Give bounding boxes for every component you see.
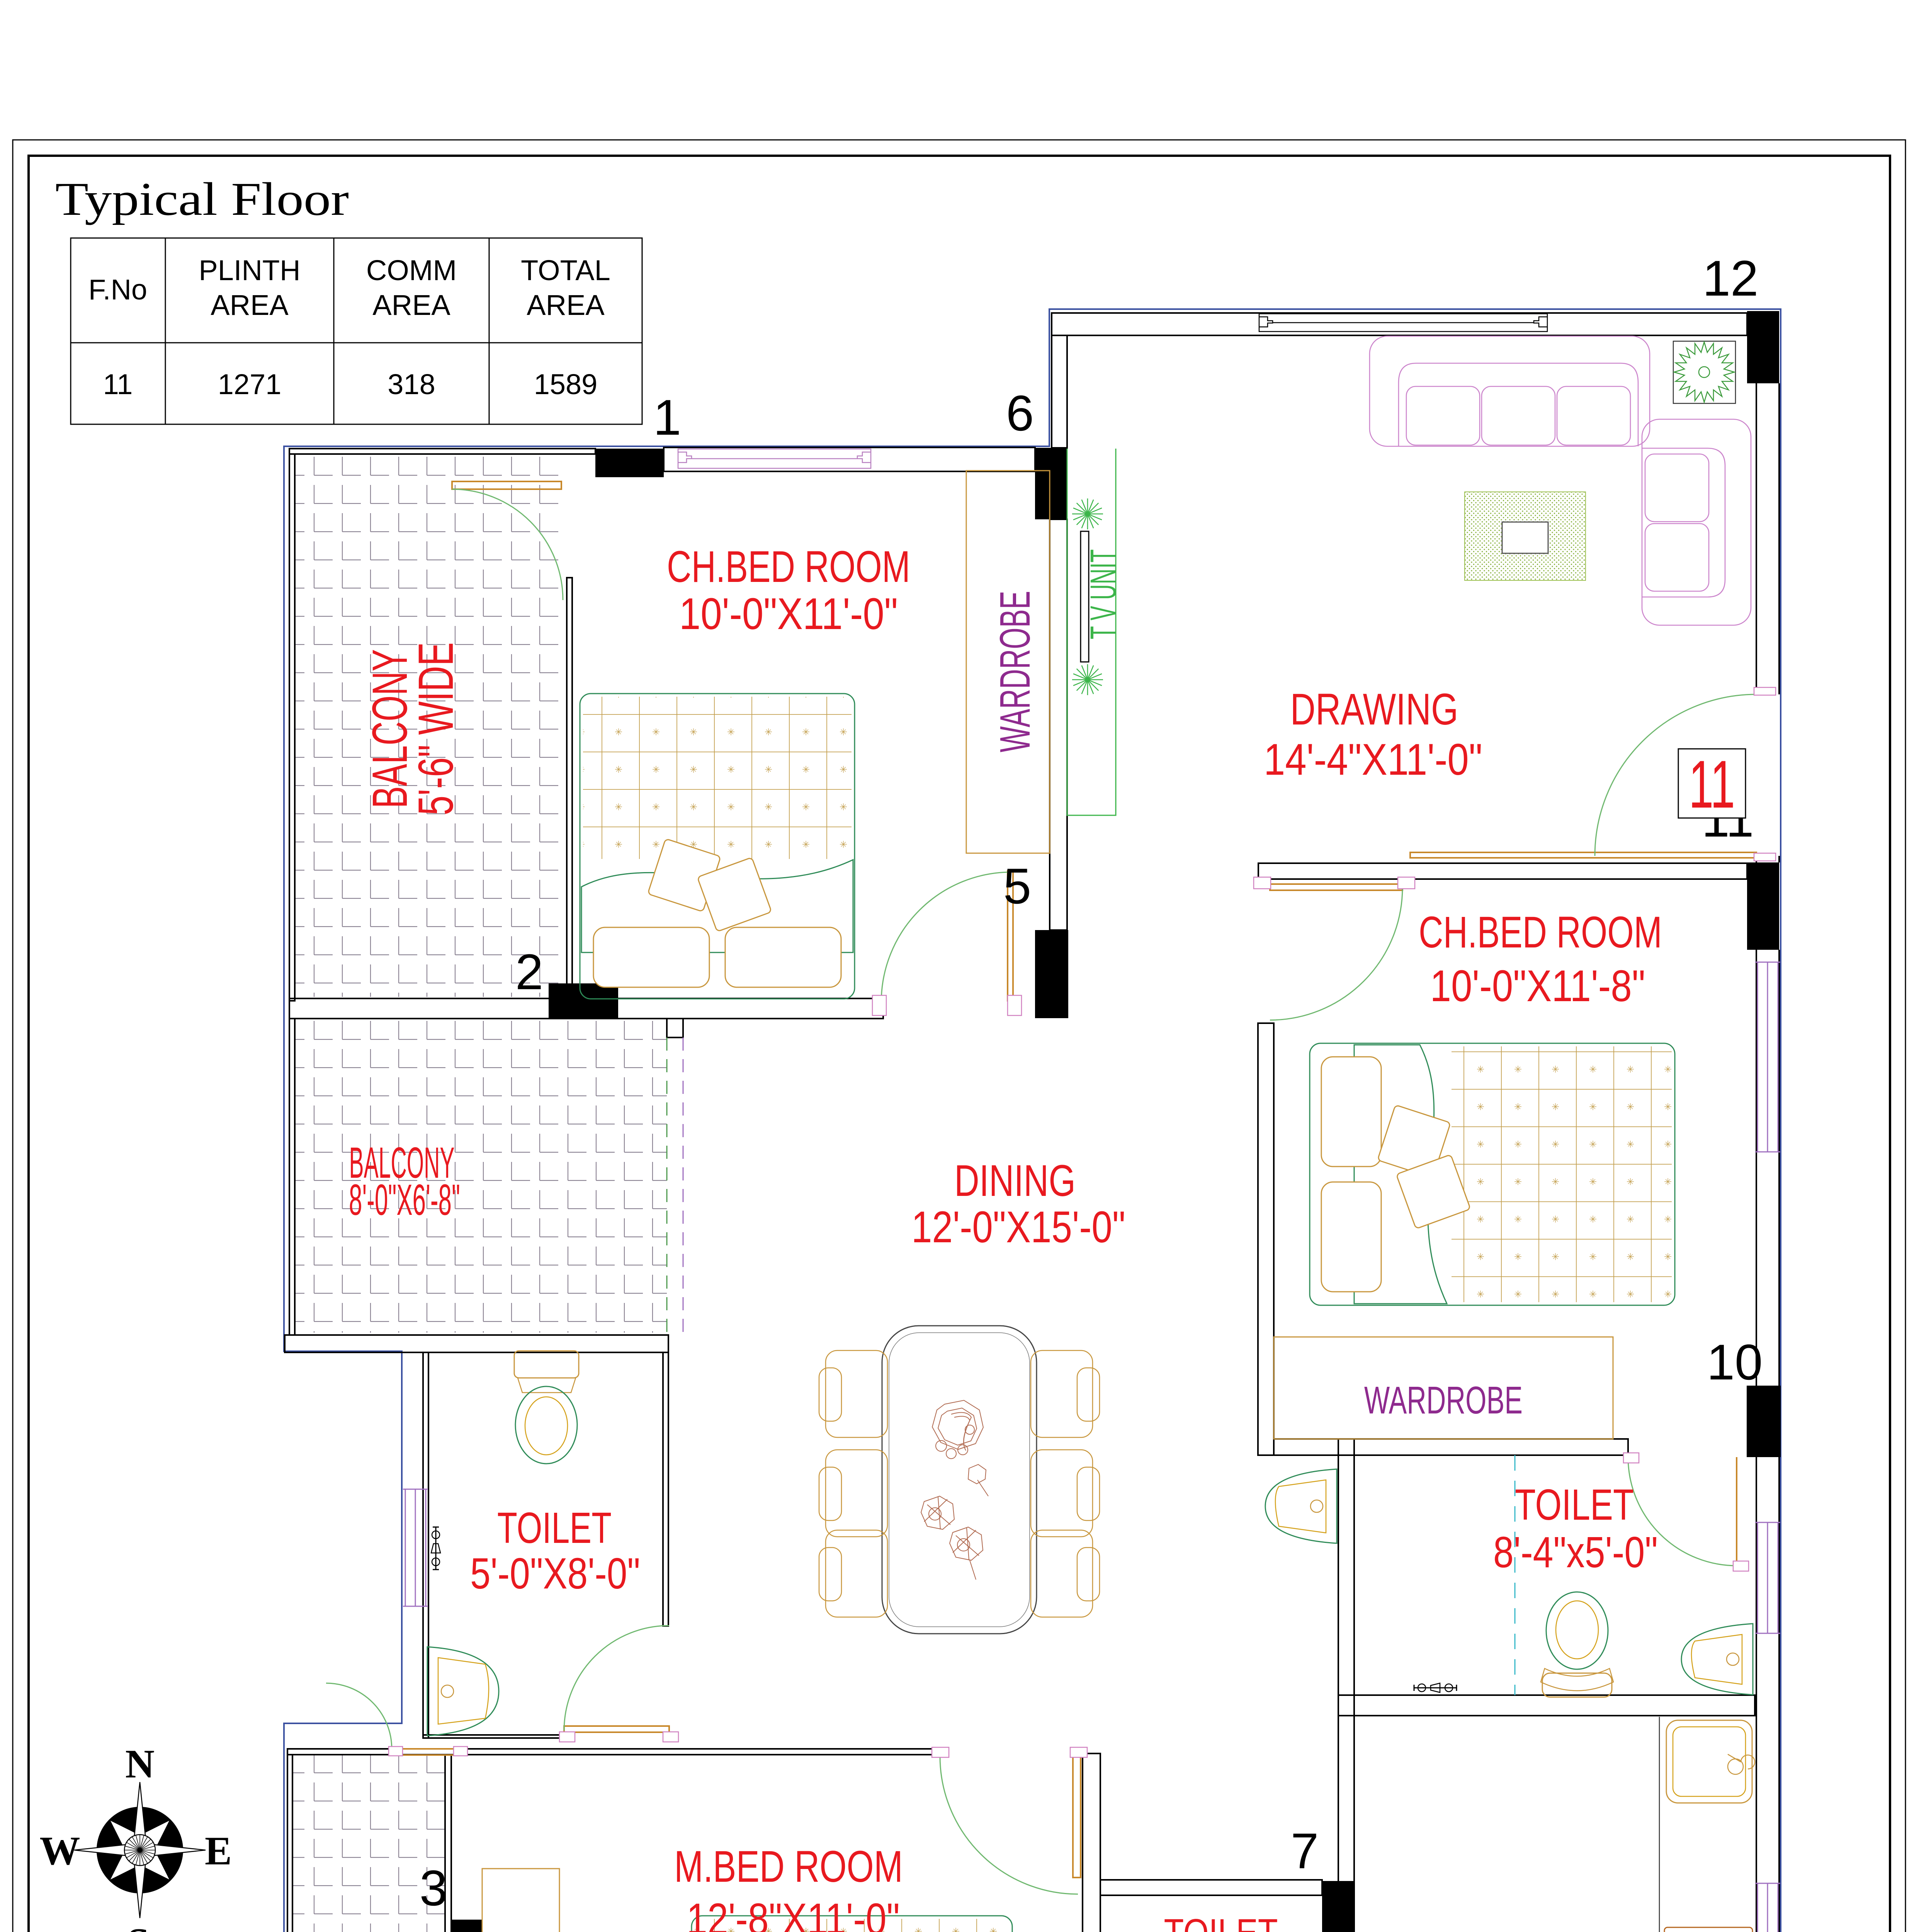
svg-text:CH.BED ROOM: CH.BED ROOM xyxy=(1419,908,1662,957)
svg-text:S: S xyxy=(127,1920,150,1932)
svg-text:WARDROBE: WARDROBE xyxy=(991,591,1039,752)
svg-text:12'-8"X11'-0": 12'-8"X11'-0" xyxy=(687,1895,900,1932)
svg-text:7: 7 xyxy=(1291,1823,1319,1879)
svg-text:5'-0"X8'-0": 5'-0"X8'-0" xyxy=(470,1549,640,1598)
svg-text:2: 2 xyxy=(515,944,543,1000)
svg-text:5'-6" WIDE: 5'-6" WIDE xyxy=(408,642,464,815)
svg-text:AREA: AREA xyxy=(372,289,450,321)
svg-text:DINING: DINING xyxy=(954,1156,1076,1206)
svg-text:10: 10 xyxy=(1707,1334,1763,1390)
svg-text:3: 3 xyxy=(420,1860,447,1916)
svg-text:14'-4"X11'-0": 14'-4"X11'-0" xyxy=(1264,735,1482,784)
svg-text:TOILET: TOILET xyxy=(497,1503,612,1552)
svg-text:E: E xyxy=(205,1828,232,1873)
svg-text:8'-4"x5'-0": 8'-4"x5'-0" xyxy=(1493,1528,1658,1577)
svg-text:318: 318 xyxy=(388,368,435,400)
svg-text:Typical Floor: Typical Floor xyxy=(55,173,349,225)
svg-text:PLINTH: PLINTH xyxy=(199,254,300,286)
svg-text:11: 11 xyxy=(103,368,133,400)
svg-text:DRAWING: DRAWING xyxy=(1290,685,1458,734)
svg-text:5: 5 xyxy=(1003,858,1031,914)
svg-text:TOILET: TOILET xyxy=(1164,1911,1278,1932)
svg-text:TOILET: TOILET xyxy=(1515,1480,1634,1529)
svg-text:12'-0"X15'-0": 12'-0"X15'-0" xyxy=(911,1202,1125,1252)
svg-text:11: 11 xyxy=(1689,747,1735,822)
svg-text:1: 1 xyxy=(653,389,681,446)
svg-text:AREA: AREA xyxy=(211,289,289,321)
svg-text:1271: 1271 xyxy=(218,368,282,400)
svg-text:12: 12 xyxy=(1703,250,1759,306)
svg-text:10'-0"X11'-0": 10'-0"X11'-0" xyxy=(679,589,898,639)
svg-text:10'-0"X11'-8": 10'-0"X11'-8" xyxy=(1430,961,1645,1011)
svg-text:TOTAL: TOTAL xyxy=(521,254,610,286)
svg-text:M.BED ROOM: M.BED ROOM xyxy=(674,1842,903,1891)
svg-text:W: W xyxy=(40,1828,80,1873)
svg-text:F.No: F.No xyxy=(88,274,147,306)
svg-text:1589: 1589 xyxy=(534,368,598,400)
svg-text:N: N xyxy=(125,1741,155,1786)
svg-text:COMM: COMM xyxy=(366,254,457,286)
svg-text:WARDROBE: WARDROBE xyxy=(1364,1379,1523,1422)
svg-text:6: 6 xyxy=(1006,385,1034,441)
svg-text:8'-0"X6'-8": 8'-0"X6'-8" xyxy=(349,1175,460,1224)
svg-text:CH.BED ROOM: CH.BED ROOM xyxy=(667,542,910,592)
svg-text:AREA: AREA xyxy=(527,289,605,321)
svg-text:T V UNIT: T V UNIT xyxy=(1083,549,1124,639)
